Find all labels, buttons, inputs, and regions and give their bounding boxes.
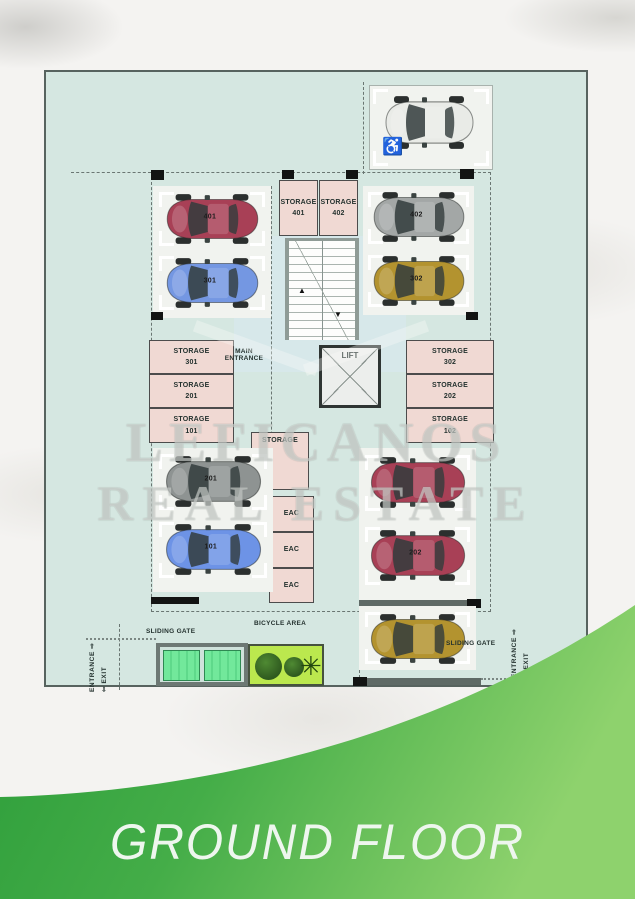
- storage-201-room: STORAGE 201: [149, 374, 234, 408]
- room-label: STORAGE: [174, 380, 210, 391]
- room-label: EAC: [284, 508, 299, 519]
- storage-402-room: STORAGE 402: [319, 180, 358, 236]
- lift-label: LIFT: [339, 351, 362, 360]
- wall-segment: [282, 170, 294, 179]
- car-number: 201: [205, 476, 218, 483]
- wall-segment: [151, 170, 164, 180]
- car-301: 301: [160, 257, 264, 309]
- room-number: 301: [185, 357, 197, 368]
- car-402: 402: [367, 191, 470, 243]
- room-number: 401: [292, 208, 304, 219]
- main-entrance-line1: MAIN: [214, 348, 274, 355]
- wall-segment: [460, 169, 474, 179]
- car-number: 301: [204, 277, 217, 284]
- eac-room-1: EAC: [269, 496, 314, 532]
- eac-room-2: EAC: [269, 532, 314, 568]
- car-401: 401: [160, 193, 264, 245]
- car-number: 202: [409, 550, 422, 557]
- room-label: STORAGE: [262, 435, 298, 446]
- storage-302-room: STORAGE 302: [406, 340, 494, 374]
- wheelchair-icon: ♿: [382, 138, 403, 155]
- room-number: 202: [444, 391, 456, 402]
- room-number: 302: [444, 357, 456, 368]
- dashed-line: [363, 82, 364, 174]
- room-label: STORAGE: [432, 380, 468, 391]
- main-entrance-label: MAIN ENTRANCE: [214, 348, 274, 362]
- room-number: 201: [185, 391, 197, 402]
- page: { "banner": { "title": "GROUND FLOOR", "…: [0, 0, 635, 899]
- car-number: 101: [205, 544, 218, 551]
- room-label: STORAGE: [174, 346, 210, 357]
- car-201: 201: [159, 455, 267, 508]
- wall-segment: [151, 312, 163, 320]
- room-label: STORAGE: [174, 414, 210, 425]
- room-label: EAC: [284, 544, 299, 555]
- lift: LIFT: [319, 345, 381, 408]
- room-number: 101: [185, 426, 197, 437]
- storage-102-room: STORAGE 102: [406, 408, 494, 443]
- room-number: 402: [332, 208, 344, 219]
- car-101: 101: [159, 523, 267, 576]
- main-entrance-line2: ENTRANCE: [214, 355, 274, 362]
- car-lower-right-1: [364, 456, 471, 509]
- room-label: STORAGE: [281, 197, 317, 208]
- wall-segment: [346, 170, 358, 179]
- stairs-up-arrow: ▲: [298, 286, 306, 295]
- wall-segment: [466, 312, 478, 320]
- car-302: 302: [367, 255, 470, 307]
- room-number: 102: [444, 426, 456, 437]
- car-number: 402: [410, 211, 423, 218]
- car-202: 202: [364, 529, 471, 582]
- stairs-down-arrow: ▼: [334, 310, 342, 319]
- page-title: GROUND FLOOR: [13, 812, 623, 872]
- storage-101-room: STORAGE 101: [149, 408, 234, 443]
- staircase: [285, 238, 359, 340]
- storage-401-room: STORAGE 401: [279, 180, 318, 236]
- car-number: 302: [410, 275, 423, 282]
- car-number: 401: [204, 213, 217, 220]
- storage-202-room: STORAGE 202: [406, 374, 494, 408]
- dashed-line: [71, 172, 151, 173]
- room-label: STORAGE: [321, 197, 357, 208]
- room-label: STORAGE: [432, 346, 468, 357]
- room-label: STORAGE: [432, 414, 468, 425]
